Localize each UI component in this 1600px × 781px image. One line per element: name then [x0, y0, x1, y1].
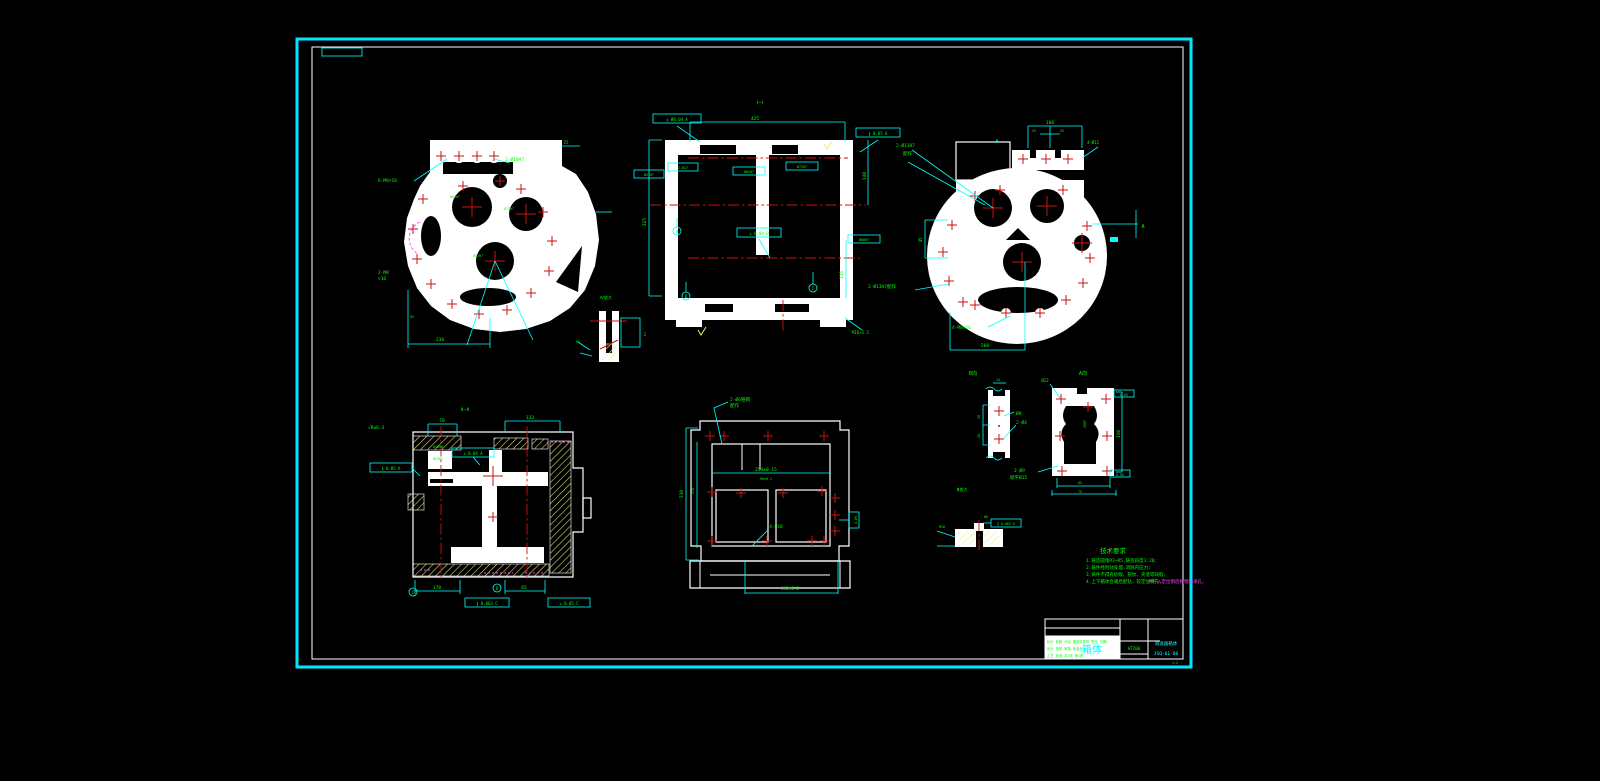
hole-note: 4-M8▽16	[952, 325, 971, 331]
dim: 25	[1060, 129, 1064, 133]
dim: 110	[1116, 430, 1122, 438]
view-b-direction: B向 28 28 Ø9 2-Ø4 14	[969, 369, 1027, 460]
datum-label: D	[496, 586, 499, 591]
dim: 230	[679, 490, 685, 498]
dim: 230	[436, 337, 444, 343]
view-title: B向	[969, 369, 977, 377]
tech-req-item: 3.铸件不得有砂眼、裂纹、夹渣等缺陷;	[1086, 571, 1166, 578]
hole-note: 配作	[903, 150, 912, 157]
surface-note: √Ra6.3	[368, 425, 385, 431]
symbol: Φ	[996, 139, 999, 145]
surface-finish-icon	[698, 327, 706, 335]
drawing-number: JSQ-01-00	[1154, 651, 1179, 657]
hole-note: 6-M8▽16	[378, 178, 397, 184]
view-top-plan: 2-Ø6锥销 配作 254±0.15 96±0.1 230 176 150±0.…	[679, 396, 859, 594]
hole-note: 锪平Ø15	[1010, 474, 1027, 481]
dim: 45	[918, 237, 923, 242]
scale-value: 1:2	[1172, 661, 1178, 665]
plate-cutout	[1061, 406, 1098, 464]
dim: 25	[564, 140, 569, 145]
view-title: Ⅰ—Ⅰ	[757, 100, 763, 106]
pin-note: 配作	[730, 402, 739, 409]
hole-note: 2-M8	[378, 270, 389, 276]
datum-label: C	[812, 286, 815, 291]
callout: Ø52H7	[644, 172, 654, 177]
dim: 65	[521, 585, 527, 591]
datum-label: C	[412, 590, 415, 595]
hole-note: 2-Ø13H7	[896, 142, 915, 149]
view-right-end: 2-Ø13H7 配作 100 25 25 4-Ø11 45 2-Ø13H7配作 …	[868, 120, 1145, 350]
dim: 254±0.15	[755, 467, 777, 473]
binding-mark	[322, 48, 362, 56]
view-title: Ⅱ—Ⅱ	[461, 407, 469, 413]
tolerance-frame: ⊥ 0.04 A	[463, 451, 483, 456]
dim: 260	[981, 343, 989, 349]
view-title: A向	[1079, 369, 1087, 377]
tolerance-frame: 0.05	[1120, 393, 1128, 397]
dim: 65	[1078, 481, 1082, 485]
dim: 28	[977, 415, 981, 419]
detail-iv: Ⅳ放大 2 R3	[576, 294, 647, 362]
signature-row: 设计 校核 审核 标准化	[1047, 646, 1083, 651]
bore-dim: Ø25H7	[433, 456, 443, 461]
hole-note: 2-Ø9	[1014, 467, 1025, 474]
dim: 100	[1046, 120, 1054, 126]
hole-note: 2-Ø4	[1016, 419, 1027, 426]
detail-iii: Ⅲ放大 ∥ 0.063 D Ø6 M10	[937, 486, 1021, 550]
thread-note: M10	[939, 525, 945, 529]
tolerance-frame: ∥ 0.063 D	[997, 522, 1015, 526]
datum-label: A	[676, 229, 679, 234]
hole-note: 4-Ø11	[1087, 140, 1100, 145]
detail-title: Ⅲ放大	[957, 486, 968, 492]
hole-note: 2-Ø10H7	[505, 156, 524, 163]
callout: Ø80H7	[859, 237, 869, 242]
hole-note: Ø12	[1041, 378, 1049, 383]
thread-note: M16×1.5	[852, 330, 869, 335]
dim: 150±0.2	[781, 586, 800, 592]
hole-note: ▽16	[378, 276, 386, 282]
bore-dim: Ø40H8	[433, 444, 443, 449]
part-name: 箱体	[1082, 643, 1102, 656]
view-a-direction: A向 110 65 75 Ø12 20H7 2-Ø9 锪平Ø15 0.05 0.…	[1010, 369, 1134, 496]
tolerance-frame: ∥ 0.05 A	[382, 466, 401, 471]
dim: 20H7	[1083, 420, 1087, 428]
dim: 325	[642, 218, 648, 226]
view-left-end: 6-M8▽16 2-Ø10H7 25 Ø62H7 Ø72H7 Ø52H7 2-M…	[378, 140, 612, 348]
hole-note: 2-Ø13H7配作	[868, 283, 896, 290]
material-value: HT200	[1128, 646, 1141, 651]
approval-row: 工艺 批准 共1张 第1张	[1047, 653, 1084, 658]
dim: 132	[526, 415, 534, 421]
hole-note: Ø6	[984, 514, 988, 519]
tolerance-frame: ∥ 0.05 A	[869, 131, 888, 136]
radius-note: R3	[576, 340, 580, 344]
callout: Ø62H7	[744, 169, 754, 174]
dim: 115	[839, 271, 845, 279]
view-section-ii: Ⅱ—Ⅱ ∥ 0.05 A ⊥ 0.04 A ∥ 0.063 C ⊥ 0.05 C…	[368, 407, 591, 607]
callout: Ø72H7	[797, 164, 807, 169]
detail-title: Ⅳ放大	[600, 294, 612, 300]
drawing-canvas: 6-M8▽16 2-Ø10H7 25 Ø62H7 Ø72H7 Ø52H7 2-M…	[0, 0, 1600, 781]
hatch-area	[958, 531, 975, 545]
hole-note: Ø9	[1016, 410, 1022, 417]
bore-dim: Ø52H7	[473, 253, 483, 258]
dim: 425	[751, 116, 759, 122]
callout: 2-Ø17	[678, 165, 688, 170]
title-block: 箱体 HT200 减速器箱体 JSQ-01-00 1:2 标记 处数 分区 更改…	[1045, 619, 1183, 665]
tolerance-frame: ∥ 0.063 C	[476, 601, 498, 606]
dim: 140	[862, 172, 868, 180]
tech-req-item: 1.铸造圆角R3~R5,铸造斜度1:20;	[1086, 557, 1157, 564]
technical-requirements: 技术要求 1.铸造圆角R3~R5,铸造斜度1:20; 2.铸件经时效处理,消除内…	[1086, 546, 1207, 585]
revision-row: 标记 处数 分区 更改文件号 签名 日期	[1047, 639, 1107, 644]
dim: 25	[1032, 129, 1036, 133]
dim: 75	[1078, 490, 1082, 494]
bore-dim: Ø72H7	[504, 206, 514, 211]
pin-note: 2-Ø6锥销	[730, 396, 750, 403]
dim: 170	[433, 585, 441, 591]
bore-dim: Ø62H7	[450, 194, 460, 199]
view-section-i: Ⅰ—Ⅰ ◎ Ø0.04 A ∥ 0.05 A Ø52H7 2-Ø17 Ø62H7…	[634, 100, 900, 335]
tech-req-item: 2.铸件经时效处理,消除内应力;	[1086, 564, 1151, 571]
tolerance-frame: ⊥ 0.05 C	[559, 601, 579, 606]
dim: 28	[977, 434, 981, 438]
tolerance-frame: ◎ Ø0.04 A	[666, 117, 688, 122]
dim: 96±0.1	[760, 477, 772, 481]
dim: 2	[644, 332, 647, 337]
dim: 14	[996, 378, 1000, 382]
drawing-title: 减速器箱体	[1155, 640, 1178, 647]
tech-req-item-highlight: 并打入定位销后精镗轴承孔。	[1148, 578, 1207, 585]
tolerance-frame: 0.05	[1116, 473, 1124, 477]
tech-req-title: 技术要求	[1100, 546, 1127, 555]
dim: 176	[691, 488, 695, 494]
hole-note: 4-Ø18	[769, 523, 783, 530]
hole-note: 4-Ø9	[853, 516, 858, 524]
section-arrow-label: A	[1141, 224, 1145, 230]
radius-note: R5	[410, 315, 414, 319]
cad-sheet: 6-M8▽16 2-Ø10H7 25 Ø62H7 Ø72H7 Ø52H7 2-M…	[0, 0, 1600, 781]
dim: 70	[439, 418, 445, 424]
tolerance-frame: ⊥ 0.04 B	[749, 231, 769, 236]
